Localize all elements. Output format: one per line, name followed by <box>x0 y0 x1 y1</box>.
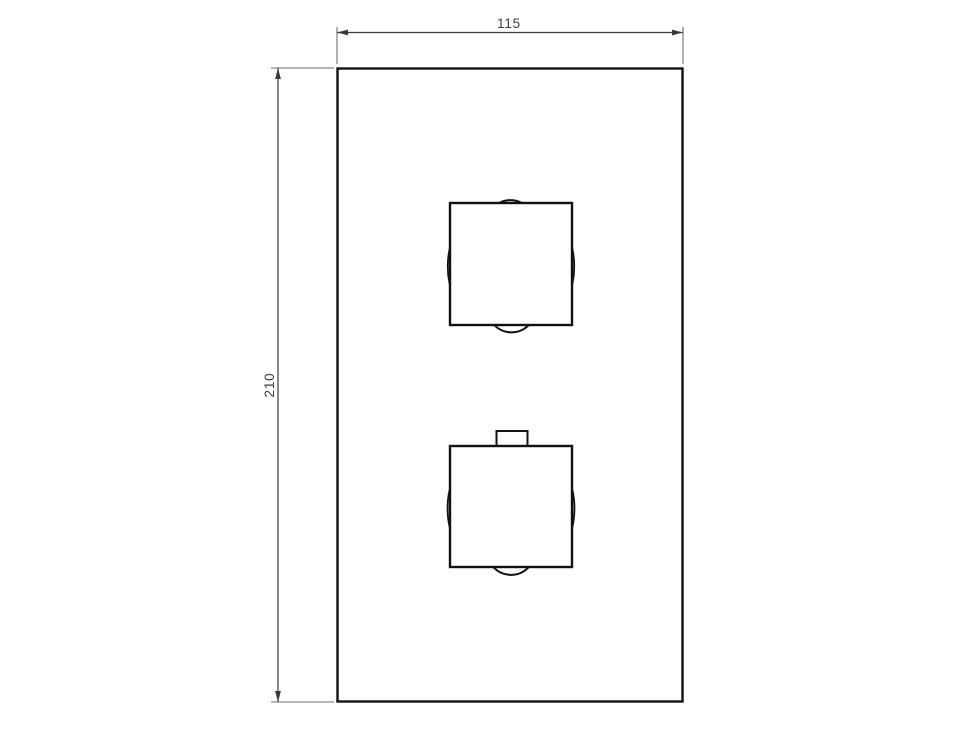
upper-knob-bottom-arc <box>495 326 528 333</box>
height-dimension: 210 <box>262 68 281 702</box>
plate-outline-group <box>338 69 683 702</box>
height-dimension-label: 210 <box>262 373 277 398</box>
height-dim-arrow-bottom <box>275 691 281 702</box>
width-dimension: 115 <box>337 16 683 35</box>
width-dimension-label: 115 <box>497 16 521 31</box>
lower-knob-bottom-arc <box>494 568 528 575</box>
technical-drawing: 115 210 <box>0 0 977 733</box>
extension-lines-group <box>271 27 683 702</box>
plate-outline <box>338 69 683 702</box>
lower-knob-tab <box>497 431 528 446</box>
drawing-canvas: 115 210 <box>0 0 977 733</box>
height-dim-arrow-top <box>275 68 281 79</box>
lower-knob-square <box>450 446 572 567</box>
width-dim-arrow-right <box>672 30 683 36</box>
width-dim-arrow-left <box>337 30 348 36</box>
upper-knob-square <box>450 203 572 325</box>
